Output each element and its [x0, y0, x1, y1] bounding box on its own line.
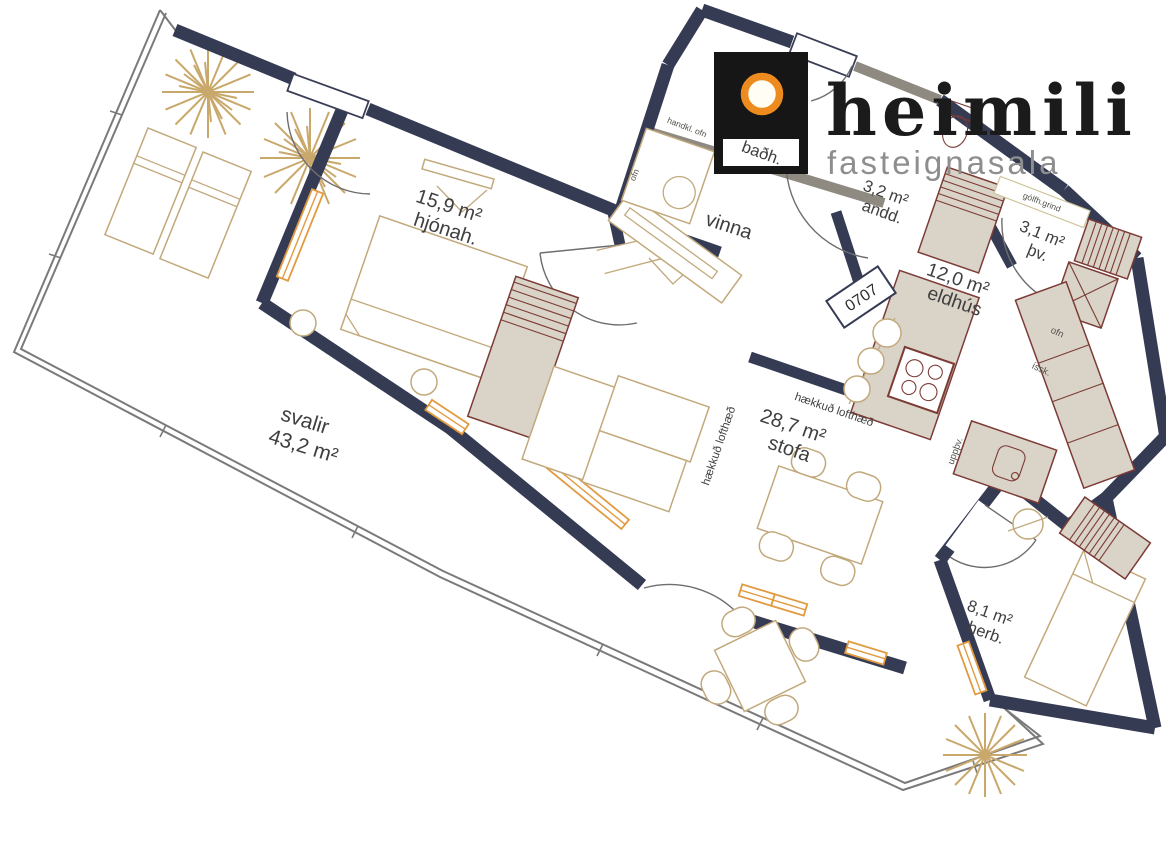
ceiling-mark	[422, 159, 494, 188]
label-vinna: vinna	[703, 208, 756, 244]
dining-table	[748, 441, 891, 589]
bar-stool	[858, 348, 884, 374]
sofa	[521, 355, 709, 513]
nightstand	[290, 310, 316, 336]
bar-stool	[844, 376, 870, 402]
logo-ring-icon	[745, 77, 780, 112]
balcony-french-door	[644, 585, 740, 616]
logo-brand-text: heimili	[826, 69, 1137, 152]
entry-closet	[918, 167, 1008, 273]
kitchen-counter-low	[953, 421, 1056, 503]
floorplan-page: gólfh.grind	[0, 0, 1166, 867]
nightstand	[411, 369, 437, 395]
logo-tagline-text: fasteignasala	[827, 144, 1060, 181]
bar-stool	[873, 319, 901, 347]
plant-icon	[943, 713, 1027, 797]
